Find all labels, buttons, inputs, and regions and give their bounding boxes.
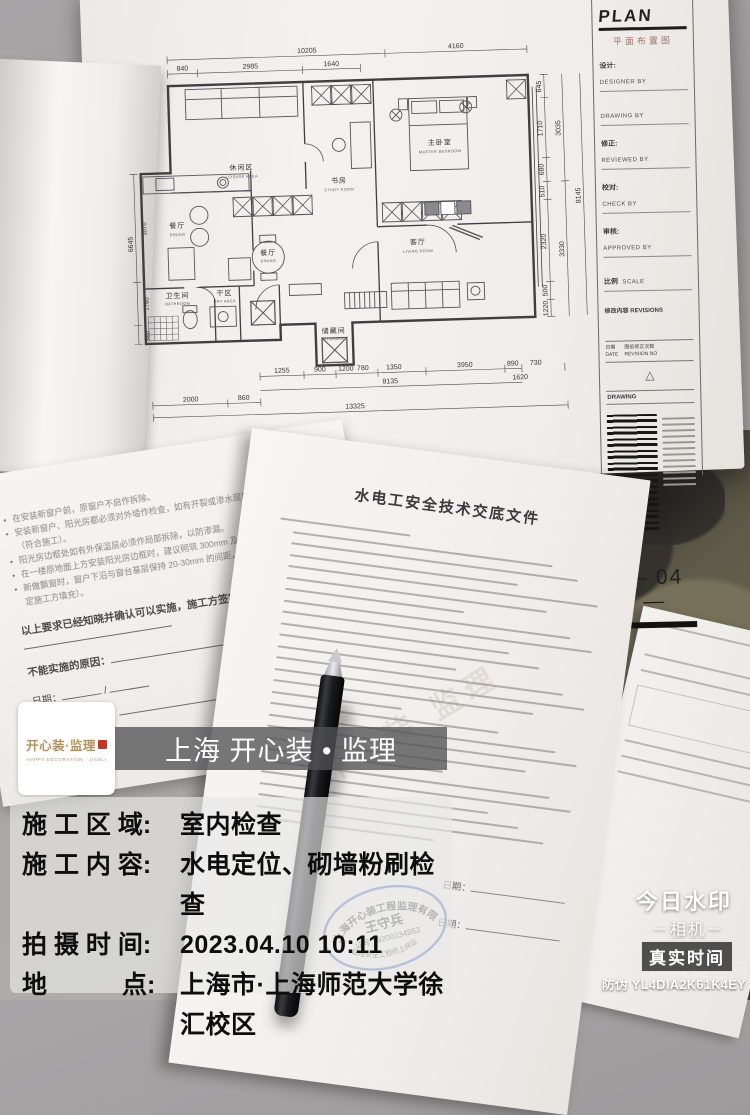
check-label-en: CHECK BY: [602, 201, 637, 208]
dim-top-840: 840: [176, 66, 188, 73]
drawing-by-label: DRAWING BY: [600, 113, 644, 120]
dim-right-500: 500: [542, 284, 549, 296]
dim-bot-3950: 3950: [457, 362, 473, 369]
dim-left-6645: 6645: [128, 236, 135, 252]
room-leisure-cn: 休闲区: [229, 163, 253, 173]
dim-right-645: 645: [536, 80, 543, 92]
room-dining1-en: DINING: [170, 233, 186, 237]
dim-right-680: 680: [538, 163, 545, 175]
dim-bot-2000: 2000: [183, 396, 199, 403]
info-row-content: 施 工 内 容: 水电定位、砌墙粉刷检查: [22, 845, 452, 925]
info-value: 室内检查: [180, 805, 450, 845]
dim-bot-1200: 1200: [338, 366, 354, 373]
dim-bot-730: 730: [530, 360, 542, 367]
revno-label-cn: 图纸修正次数: [624, 344, 654, 351]
plan-title-underline: [599, 26, 687, 31]
room-master-cn: 主卧室: [428, 137, 452, 147]
plan-title: PLAN: [598, 5, 688, 27]
room-study-cn: 书房: [331, 176, 347, 185]
dim-right-8145: 8145: [575, 187, 582, 203]
designer-label-cn: 设计:: [599, 59, 687, 71]
room-bath-en: BATHROOM: [165, 302, 190, 307]
dim-top-2985: 2985: [242, 63, 258, 70]
pen-tip: [328, 647, 344, 663]
room-study-en: STUDY ROOM: [324, 187, 354, 192]
brand-logo-subtext: HAPPY DECORATION · JIANLI: [27, 757, 107, 762]
watermark-title-bar: 上海 开心装 • 监理: [115, 727, 447, 770]
revisions-label-en: REVISIONS: [630, 308, 663, 315]
room-storage-cn: 储藏间: [322, 326, 346, 336]
dim-right-2320: 2320: [541, 233, 548, 249]
brand-red-badge-icon: [98, 740, 107, 749]
dim-bot-13325: 13325: [345, 403, 365, 411]
info-row-location: 地 点: 上海市·上海师范大学徐汇校区: [22, 965, 452, 1045]
dim-bot-1350: 1350: [386, 364, 402, 371]
date-label-cn: 日期: [605, 345, 615, 351]
info-value: 2023.04.10 10:11: [180, 925, 450, 965]
date-label-en: DATE: [605, 352, 618, 358]
dim-left-560: 560: [146, 330, 152, 341]
dim-right-3035: 3035: [555, 120, 562, 136]
room-living-en: LIVING ROOM: [403, 249, 433, 254]
dim-bot-8135: 8135: [382, 378, 398, 385]
reason-label: 不能实施的原因：: [27, 654, 112, 679]
info-label: 地 点:: [22, 965, 180, 1045]
room-dry-cn: 干区: [216, 289, 232, 297]
dim-right-1710: 1710: [537, 121, 544, 137]
dim-right-3330: 3330: [559, 241, 566, 257]
drawing-title-block: PLAN 平面布置图 设计:DESIGNER BY DRAWING BY 修正:…: [591, 0, 703, 477]
room-dining2-en: DINING: [261, 259, 277, 263]
revisions-label-cn: 修改内容: [605, 308, 629, 315]
document-date-line: 日期：: [442, 877, 566, 907]
revno-label-en: REVISION NO: [624, 351, 657, 358]
info-value: 上海市·上海师范大学徐汇校区: [180, 965, 450, 1045]
info-label: 施 工 区 域:: [22, 805, 180, 845]
floor-plan: 休闲区 LEISURE AREA 书房 STUDY ROOM 主卧室 MASTE…: [122, 35, 615, 458]
approved-label-en: APPROVED BY: [603, 245, 652, 252]
dim-bot-780: 780: [357, 365, 369, 372]
brand-logo-box: 开心装·监理 HAPPY DECORATION · JIANLI: [18, 702, 115, 795]
watermark-app-name: 今日水印: [636, 884, 732, 916]
room-master-en: MASTER BEDROOM: [419, 149, 461, 154]
dim-bot-1620: 1620: [512, 374, 528, 381]
room-bath-cn: 卫生间: [165, 291, 189, 301]
info-label: 拍 摄 时 间:: [22, 925, 180, 965]
dim-top-overall: 10205: [297, 48, 317, 56]
watermark-title: 上海 开心装 • 监理: [165, 729, 397, 768]
info-label: 施 工 内 容:: [22, 845, 180, 925]
plan-title-cn: 平面布置图: [599, 33, 687, 48]
room-dining2-cn: 餐厅: [260, 248, 276, 257]
designer-label-en: DESIGNER BY: [600, 79, 647, 86]
room-leisure-en: LEISURE AREA: [226, 174, 258, 179]
warning-triangle-icon: △: [606, 367, 694, 383]
room-storage-en: STORAGE: [323, 337, 344, 342]
room-dining1-cn: 餐厅: [169, 221, 185, 230]
dim-left-3070: 3070: [142, 222, 148, 236]
pen-cone: [324, 661, 344, 677]
info-row-area: 施 工 区 域: 室内检查: [22, 805, 452, 845]
brand-logo-text: 开心装·监理: [26, 735, 96, 754]
date-separator: /: [103, 685, 107, 696]
room-dry-en: DRY AREA: [213, 299, 235, 304]
real-time-badge: 真实时间: [641, 941, 733, 972]
watermark-app-subname: －相机－: [652, 916, 724, 940]
dim-bot-1255: 1255: [274, 368, 290, 375]
check-label-cn: 校对:: [602, 181, 690, 193]
dim-top-1640: 1640: [323, 61, 339, 68]
dim-bot-890: 890: [507, 360, 519, 367]
dim-left-1760: 1760: [144, 297, 150, 311]
info-value: 水电定位、砌墙粉刷检查: [180, 845, 450, 925]
anti-counterfeit-code: 防伪 YL4DIA2K61K4EY: [602, 974, 746, 993]
reviewed-label-cn: 修正:: [601, 137, 689, 149]
drawing-box-label: DRAWING: [606, 389, 694, 405]
scale-label-cn: 比例: [604, 279, 618, 286]
watermark-info-panel: 施 工 区 域: 室内检查 施 工 内 容: 水电定位、砌墙粉刷检查 拍 摄 时…: [10, 797, 452, 993]
dim-bot-900: 900: [314, 366, 326, 373]
dim-bot-860: 860: [238, 395, 250, 402]
reviewed-label-en: REVIEWED BY: [601, 157, 648, 164]
dim-right-510: 510: [539, 185, 546, 197]
info-row-time: 拍 摄 时 间: 2023.04.10 10:11: [22, 925, 452, 965]
scale-label-en: SCALE: [622, 279, 644, 285]
notes-text-lines: [662, 413, 697, 532]
room-living-cn: 客厅: [410, 237, 426, 246]
approved-label-cn: 审核:: [603, 225, 691, 237]
dim-top-4160: 4160: [448, 43, 464, 50]
dim-right-1220: 1220: [543, 300, 550, 316]
